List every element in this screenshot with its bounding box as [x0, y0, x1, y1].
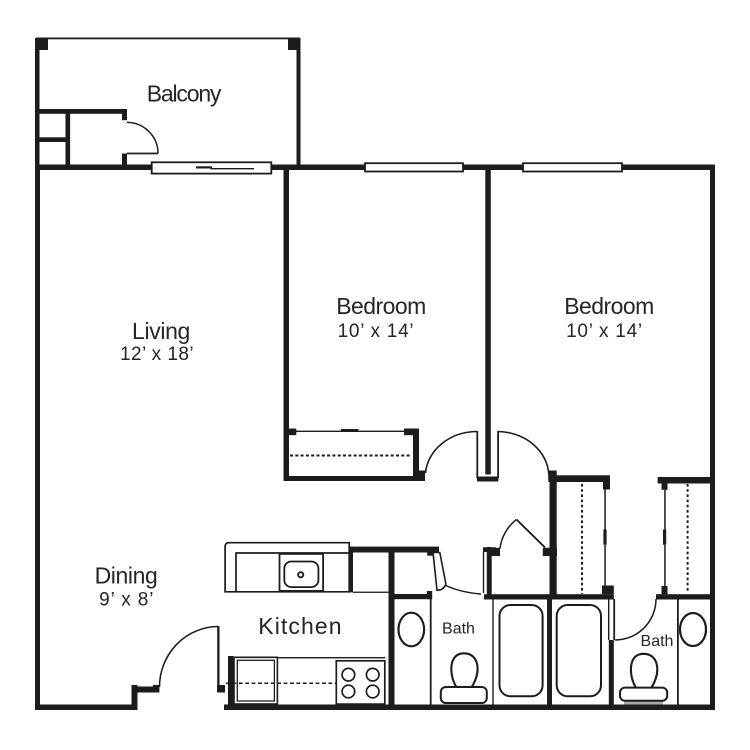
svg-text:12’ x 18’: 12’ x 18’	[120, 344, 194, 365]
svg-text:Living: Living	[132, 318, 190, 344]
svg-text:10’ x 14’: 10’ x 14’	[566, 321, 643, 342]
svg-text:Bath: Bath	[442, 621, 475, 638]
svg-text:Kitchen: Kitchen	[258, 613, 342, 639]
svg-text:10’ x 14’: 10’ x 14’	[338, 321, 415, 342]
svg-text:Dining: Dining	[95, 563, 158, 589]
svg-text:Bedroom: Bedroom	[336, 293, 425, 319]
svg-text:Balcony: Balcony	[147, 81, 222, 107]
svg-text:9’ x 8’: 9’ x 8’	[99, 590, 154, 611]
svg-text:Bath: Bath	[641, 633, 674, 650]
svg-text:Bedroom: Bedroom	[564, 293, 653, 319]
